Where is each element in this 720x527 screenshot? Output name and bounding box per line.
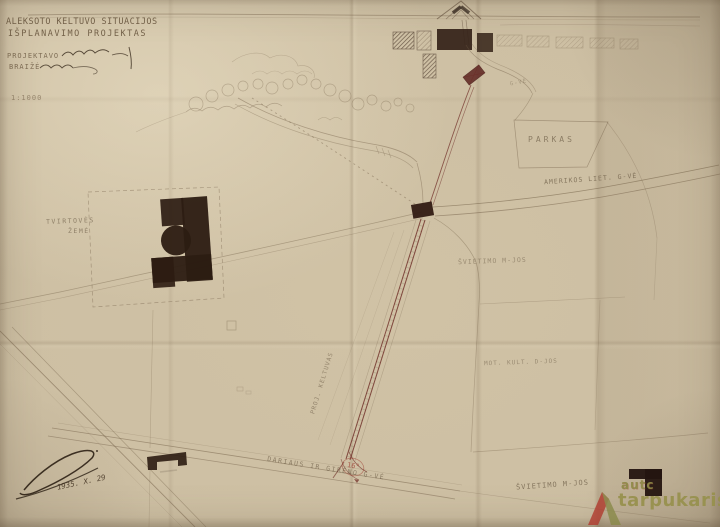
plan-title-line2: IŠPLANAVIMO PROJEKTAS: [8, 29, 147, 39]
slope-lines: [318, 230, 404, 445]
label-parkas: PARKAS: [528, 135, 575, 144]
funicular-line: [333, 65, 485, 483]
palace-building: [147, 196, 213, 288]
plan-title-line1: ALEKSOTO KELTUVO SITUACIJOS: [6, 17, 158, 27]
map-linework: [0, 0, 720, 527]
label-tvirtoves-zeme-2: ŽEMĖ: [68, 227, 90, 235]
school-building: [147, 452, 187, 472]
scanned-plan-document: ALEKSOTO KELTUVO SITUACIJOS IŠPLANAVIMO …: [0, 0, 720, 527]
buildings-row: [393, 29, 638, 78]
funicular-lower-station: [463, 65, 485, 85]
braize-label: BRAIŽĖ: [9, 63, 40, 71]
watermark-text-tarpukaris: tarpukaris: [618, 490, 720, 511]
label-tvirtoves-zeme-1: TVIRTOVĖS: [46, 216, 95, 226]
roads: [0, 44, 720, 527]
watermark: autc tarpukaris: [584, 477, 720, 527]
projektavo-label: PROJEKTAVO: [7, 52, 59, 60]
park-trees: [136, 53, 423, 206]
scale-label: 1:1000: [11, 94, 42, 102]
